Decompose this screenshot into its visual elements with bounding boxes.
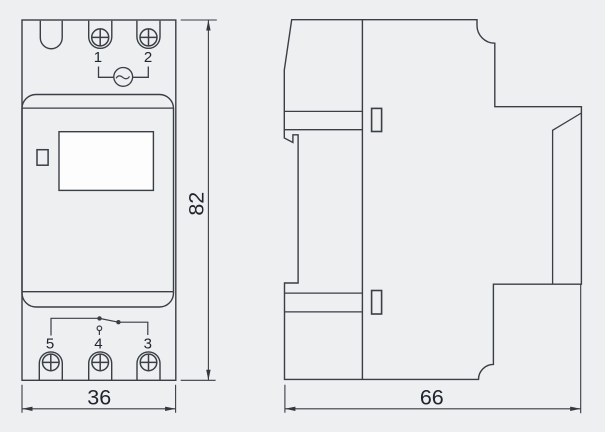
svg-text:3: 3 bbox=[144, 336, 152, 353]
svg-text:36: 36 bbox=[87, 386, 111, 410]
svg-text:82: 82 bbox=[185, 192, 209, 216]
svg-text:2: 2 bbox=[144, 49, 152, 66]
svg-text:66: 66 bbox=[420, 386, 444, 410]
svg-text:1: 1 bbox=[94, 49, 102, 66]
svg-text:5: 5 bbox=[46, 336, 54, 353]
svg-text:4: 4 bbox=[94, 336, 102, 353]
